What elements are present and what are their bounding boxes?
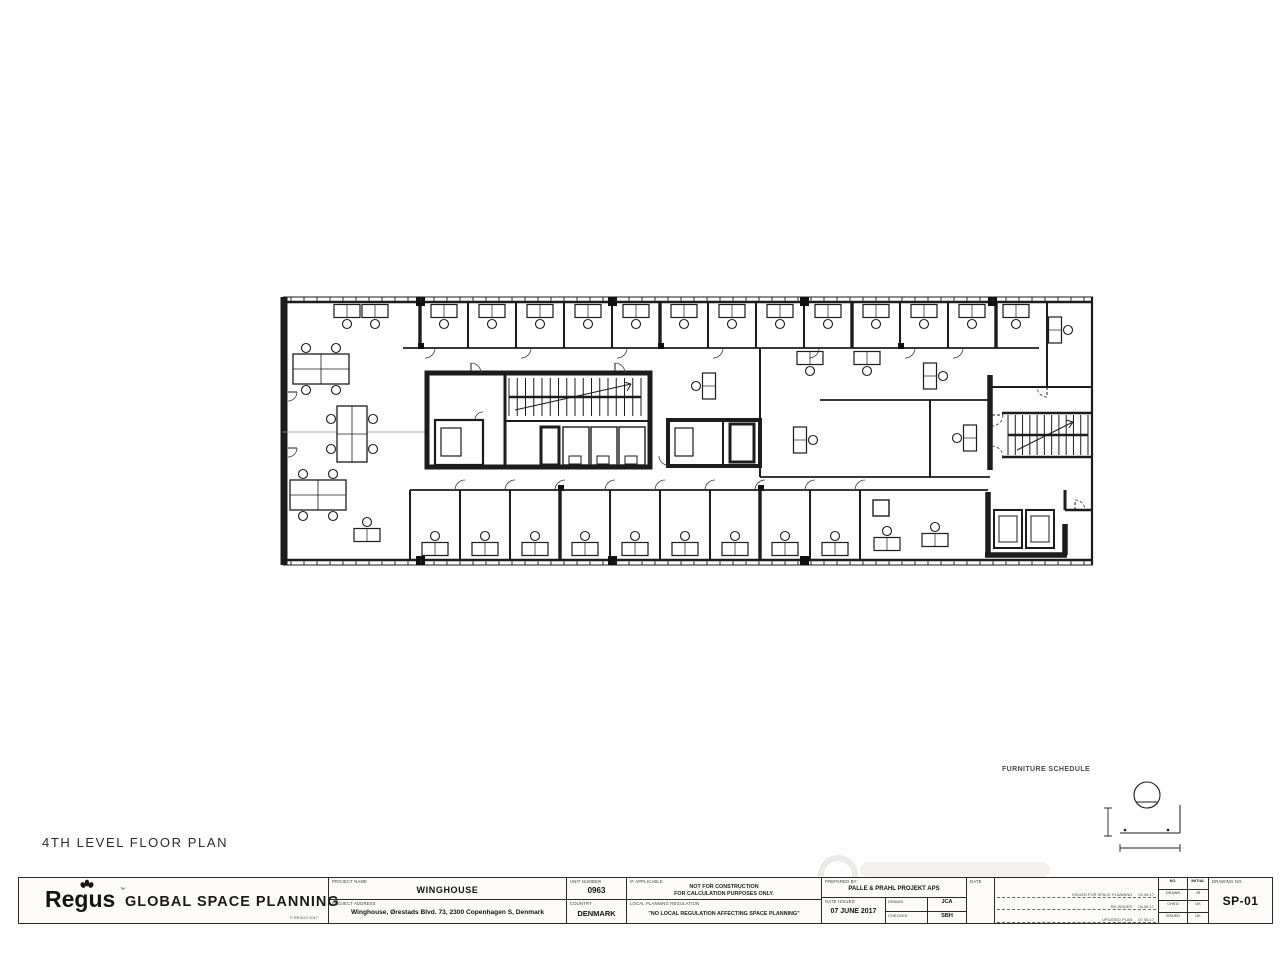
- logo-footnote: © REGUS 2017: [290, 915, 318, 920]
- prepared-by-value: PALLE & PRAHL PROJEKT APS: [822, 886, 966, 892]
- checked-value: SBH: [928, 912, 966, 925]
- desk-symbol: [874, 527, 900, 551]
- door-swing-symbol: [713, 348, 723, 358]
- desk-symbol: [767, 305, 793, 329]
- regus-leaf-icon: [79, 879, 95, 889]
- initials-header-row: NO.INITIAL: [1159, 878, 1208, 890]
- watermark-text-ghost: [860, 862, 1050, 877]
- door-swing-symbol: [605, 480, 615, 490]
- desk-symbol: [719, 305, 745, 329]
- floor-plan-drawing: [275, 288, 1105, 580]
- desk-symbol: [794, 427, 818, 453]
- desk-symbol: [354, 518, 380, 542]
- drawing-no-label: DRAWING NO.: [1212, 880, 1243, 885]
- revision-row: RE-ISSUED06.06.17: [997, 898, 1156, 911]
- desk-symbol: [692, 373, 716, 399]
- door-swing-symbol: [705, 480, 715, 490]
- prepared-date-cell: PREPARED BY: PALLE & PRAHL PROJEKT APS D…: [821, 878, 966, 923]
- unit-country-cell: UNIT NUMBER 0963 COUNTRY DENMARK: [566, 878, 626, 923]
- country-label: COUNTRY: [570, 902, 592, 907]
- checked-label: CHECKED: [886, 912, 928, 925]
- unit-number-value: 0963: [567, 886, 626, 895]
- desk-symbol: [863, 305, 889, 329]
- logo-trademark: ™: [120, 887, 125, 893]
- country-value: DENMARK: [567, 909, 626, 918]
- revisions-cell: DATE ISSUED FOR SPACE PLANNING02.06.17RE…: [966, 878, 1158, 923]
- desk-symbol: [815, 305, 841, 329]
- scanned-floor-plan-sheet: { "sheet": { "plan_title": "4TH LEVEL FL…: [0, 0, 1280, 960]
- furniture-schedule-label: FURNITURE SCHEDULE: [1002, 766, 1090, 773]
- door-swing-symbol: [475, 412, 483, 420]
- desk-symbol: [671, 305, 697, 329]
- desk-symbol: [472, 532, 498, 556]
- desk-symbol: [572, 532, 598, 556]
- initials-table-cell: NO.INITIALDRAWNJRCHK'DDKISSUEDDK: [1158, 878, 1208, 923]
- door-swing-symbol: [855, 480, 865, 490]
- door-swing-symbol: [521, 348, 531, 358]
- desk-symbol: [623, 305, 649, 329]
- desk-symbol: [854, 352, 880, 376]
- door-swing-symbol: [655, 480, 665, 490]
- desk-symbol: [522, 532, 548, 556]
- door-swing-symbol: [953, 348, 963, 358]
- revision-row: UPDATED PLAN07.06.17: [997, 910, 1156, 923]
- unit-number-label: UNIT NUMBER: [570, 880, 601, 885]
- desk-cluster-symbol: [290, 470, 346, 521]
- door-swing-symbol: [455, 480, 465, 490]
- door-swing-symbol: [1075, 500, 1085, 510]
- title-block: Regus ™ GLOBAL SPACE PLANNING © REGUS 20…: [18, 877, 1273, 924]
- desk-symbol: [575, 305, 601, 329]
- notes-cell: IF APPLICABLE NOT FOR CONSTRUCTION FOR C…: [626, 878, 821, 923]
- furniture-detail-drawing: [1095, 775, 1195, 860]
- note2-value: "NO LOCAL REGULATION AFFECTING SPACE PLA…: [627, 911, 821, 918]
- desk-symbol: [422, 532, 448, 556]
- project-cell: PROJECT NAME WINGHOUSE PROJECT ADDRESS W…: [328, 878, 566, 923]
- door-swing-symbol: [288, 448, 297, 457]
- initials-row: ISSUEDDK: [1159, 913, 1208, 924]
- project-address-label: PROJECT ADDRESS: [332, 902, 376, 907]
- project-address-value: Winghouse, Ørestads Blvd. 73, 2300 Copen…: [329, 909, 566, 916]
- drawn-value: JCA: [928, 898, 966, 911]
- door-swing-symbol: [1037, 387, 1047, 397]
- desk-symbol: [622, 532, 648, 556]
- desk-symbol: [334, 305, 360, 329]
- desk-symbol: [797, 352, 823, 376]
- desk-symbol: [1049, 317, 1073, 343]
- note1-line1: NOT FOR CONSTRUCTION: [627, 884, 821, 891]
- revision-row: ISSUED FOR SPACE PLANNING02.06.17: [997, 885, 1156, 898]
- initials-row: CHK'DDK: [1159, 901, 1208, 913]
- door-swing-symbol: [992, 446, 1003, 457]
- door-swing-symbol: [425, 348, 435, 358]
- desk-symbol: [431, 305, 457, 329]
- door-swing-symbol: [992, 415, 1003, 426]
- desk-symbol: [924, 363, 948, 389]
- initials-table: NO.INITIALDRAWNJRCHK'DDKISSUEDDK: [1159, 878, 1208, 923]
- title-block-logo-cell: Regus ™ GLOBAL SPACE PLANNING © REGUS 20…: [19, 878, 328, 923]
- revisions-date-label: DATE: [970, 880, 982, 885]
- desk-cluster-symbol: [327, 406, 378, 462]
- door-swing-symbol: [617, 348, 627, 358]
- desk-symbol: [922, 523, 948, 547]
- door-swing-symbol: [805, 480, 815, 490]
- regus-logo: Regus: [45, 886, 115, 913]
- revision-rows: ISSUED FOR SPACE PLANNING02.06.17RE-ISSU…: [995, 878, 1158, 923]
- drawn-label: DRAWN: [886, 898, 928, 911]
- desk-symbol: [822, 532, 848, 556]
- desk-symbol: [772, 532, 798, 556]
- desk-symbol: [672, 532, 698, 556]
- desk-symbol: [527, 305, 553, 329]
- project-name-label: PROJECT NAME: [332, 880, 367, 885]
- drawing-no-value: SP-01: [1209, 894, 1272, 908]
- date-issued-label: DATE ISSUED: [825, 900, 855, 905]
- desk-symbol: [959, 305, 985, 329]
- desk-symbol: [722, 532, 748, 556]
- prepared-by-label: PREPARED BY:: [825, 880, 858, 885]
- desk-symbol: [362, 305, 388, 329]
- drawing-number-cell: DRAWING NO. SP-01: [1208, 878, 1272, 923]
- desk-cluster-symbol: [293, 344, 349, 395]
- date-issued-value: 07 JUNE 2017: [822, 908, 885, 915]
- project-name-value: WINGHOUSE: [329, 885, 566, 895]
- department-title: GLOBAL SPACE PLANNING: [125, 894, 340, 910]
- note1-line2: FOR CALCULATION PURPOSES ONLY.: [627, 891, 821, 898]
- note2-label: LOCAL PLANNING REGULATION: [630, 902, 699, 907]
- door-swing-symbol: [288, 392, 297, 401]
- desk-symbol: [1003, 305, 1029, 329]
- desk-symbol: [953, 425, 977, 451]
- initials-row: DRAWNJR: [1159, 890, 1208, 902]
- door-swing-symbol: [505, 480, 515, 490]
- desk-symbol: [911, 305, 937, 329]
- plan-title: 4TH LEVEL FLOOR PLAN: [42, 835, 228, 850]
- desk-symbol: [479, 305, 505, 329]
- door-swing-symbol: [905, 348, 915, 358]
